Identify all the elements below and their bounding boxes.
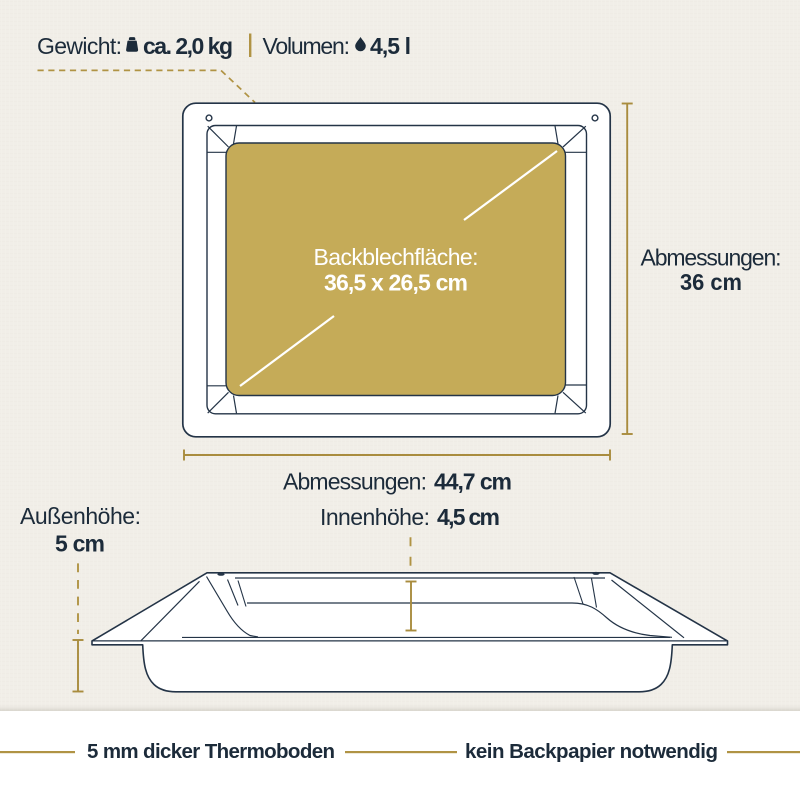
svg-text:Abmessungen:: Abmessungen: xyxy=(641,245,782,271)
svg-text:4,5 cm: 4,5 cm xyxy=(437,504,500,530)
svg-text:Gewicht:: Gewicht: xyxy=(37,33,122,59)
svg-text:ca. 2,0 kg: ca. 2,0 kg xyxy=(143,33,233,59)
svg-text:44,7 cm: 44,7 cm xyxy=(434,469,512,495)
svg-text:36 cm: 36 cm xyxy=(680,269,742,295)
svg-text:5 cm: 5 cm xyxy=(55,531,105,557)
svg-text:Außenhöhe:: Außenhöhe: xyxy=(20,503,141,529)
svg-text:36,5 x 26,5 cm: 36,5 x 26,5 cm xyxy=(324,270,468,296)
svg-text:Backblechfläche:: Backblechfläche: xyxy=(314,244,479,270)
svg-text:5 mm dicker Thermoboden: 5 mm dicker Thermoboden xyxy=(87,740,335,763)
svg-text:Abmessungen:: Abmessungen: xyxy=(283,469,427,495)
svg-text:4,5 l: 4,5 l xyxy=(370,33,411,59)
svg-text:Volumen:: Volumen: xyxy=(263,33,351,59)
svg-text:kein Backpapier notwendig: kein Backpapier notwendig xyxy=(465,740,718,763)
svg-text:Innenhöhe:: Innenhöhe: xyxy=(320,504,430,530)
